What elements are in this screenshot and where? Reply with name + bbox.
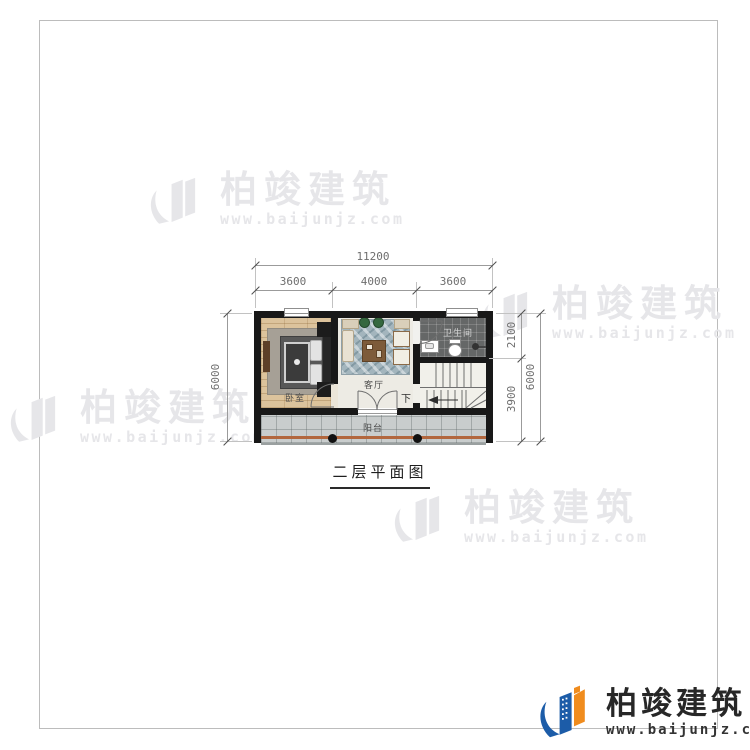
sink-basin: [425, 343, 434, 349]
brand-logo-icon: [538, 682, 598, 742]
railing-post: [413, 434, 422, 443]
dresser: [263, 341, 270, 372]
cabinet: [394, 319, 410, 329]
watermark-name: 柏竣建筑: [552, 285, 737, 322]
wall-segment: [413, 357, 493, 363]
toilet: [448, 344, 462, 357]
dim-label-left-depth: 6000: [210, 341, 222, 413]
balcony-railing: [261, 436, 486, 439]
plant-icon: [373, 317, 384, 328]
bed-ornament: [294, 359, 300, 365]
room-label-bathroom: 卫生间: [433, 326, 483, 339]
wall-segment: [331, 318, 338, 384]
cabinet: [342, 319, 359, 329]
balcony-slab-edge: [261, 443, 486, 445]
table-tray: [366, 344, 373, 350]
table-tray: [376, 350, 382, 358]
brand-name: 柏竣建筑: [606, 688, 750, 719]
watermark-name: 柏竣建筑: [464, 489, 649, 526]
stairs-area: [420, 363, 486, 408]
dim-label-segment: 3600: [257, 276, 329, 288]
wall-segment: [397, 408, 486, 415]
window: [446, 308, 478, 317]
extension-line: [332, 282, 333, 308]
watermark-logo-icon: [8, 386, 70, 448]
bathroom-doorway: [413, 321, 420, 344]
dim-label-segment: 3600: [417, 276, 489, 288]
watermark-logo-icon: [148, 168, 210, 230]
balcony-door-sill: [358, 409, 397, 414]
wall-segment: [486, 318, 493, 443]
brand-url: www.baijunjz.com: [606, 723, 750, 737]
watermark-url: www.baijunjz.com: [80, 430, 265, 445]
dim-label-segment: 4000: [338, 276, 410, 288]
dim-line: [255, 290, 492, 291]
wall-segment: [254, 318, 261, 443]
dim-line: [227, 313, 228, 441]
room-label-balcony: 阳台: [353, 421, 393, 434]
wall-segment: [413, 403, 420, 415]
page-title: 二层平面图: [330, 461, 430, 486]
dim-label-right-depth: 6000: [525, 341, 537, 413]
watermark-name: 柏竣建筑: [220, 171, 405, 208]
dim-label-right-segment: 2100: [506, 299, 518, 371]
nightstand: [317, 322, 331, 337]
watermark-name: 柏竣建筑: [80, 389, 265, 426]
nightstand: [317, 382, 331, 397]
shower-head-icon: [472, 343, 479, 350]
watermark-url: www.baijunjz.com: [552, 326, 737, 341]
pillow: [310, 340, 322, 361]
dim-label-right-segment: 3900: [506, 363, 518, 435]
shower-arm: [478, 346, 486, 348]
watermark: 柏竣建筑 www.baijunjz.com: [148, 168, 405, 230]
title-underline: [330, 487, 430, 489]
watermark-url: www.baijunjz.com: [220, 212, 405, 227]
stairs-down-label: 下: [401, 390, 411, 405]
dim-line: [540, 313, 541, 441]
window: [284, 308, 309, 317]
wall-segment: [413, 344, 420, 384]
room-label-living: 客厅: [354, 378, 394, 391]
watermark-logo-icon: [392, 486, 454, 548]
bedroom-doorway: [331, 384, 338, 408]
side-unit: [393, 331, 410, 347]
sofa: [342, 330, 354, 362]
stairs-opening: [413, 384, 420, 403]
watermark: 柏竣建筑 www.baijunjz.com: [392, 486, 649, 548]
dim-line: [521, 313, 522, 441]
dim-label-total-width: 11200: [337, 251, 409, 263]
plan-title-block: 二层平面图: [330, 461, 430, 489]
side-unit: [393, 349, 410, 365]
brand-logo: 柏竣建筑 www.baijunjz.com: [538, 682, 750, 742]
railing-post: [328, 434, 337, 443]
plant-icon: [359, 317, 370, 328]
dim-line: [255, 265, 492, 266]
wall-segment: [413, 318, 420, 321]
wall-segment: [254, 408, 358, 415]
watermark-url: www.baijunjz.com: [464, 530, 649, 545]
room-label-bedroom: 卧室: [275, 391, 315, 404]
drawing-sheet: 柏竣建筑 www.baijunjz.com 柏竣建筑 www.baijunjz.…: [0, 0, 750, 750]
